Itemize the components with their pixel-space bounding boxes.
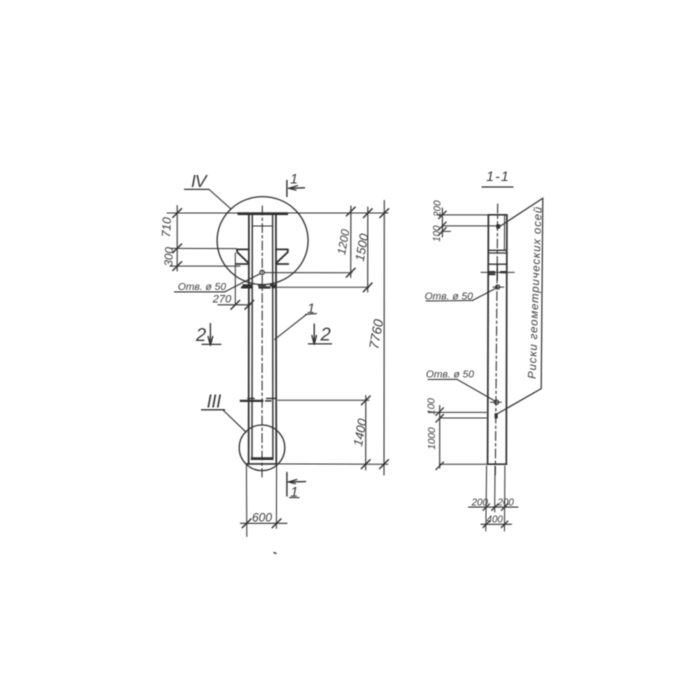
svg-text:2: 2 [195, 324, 207, 345]
svg-text:710: 710 [159, 217, 174, 238]
svg-text:100: 100 [427, 398, 438, 415]
svg-text:1400: 1400 [351, 418, 370, 448]
svg-text:1: 1 [290, 171, 298, 187]
svg-text:1500: 1500 [353, 233, 372, 263]
svg-text:200: 200 [497, 497, 515, 508]
svg-text:100: 100 [432, 225, 443, 242]
svg-text:200: 200 [471, 497, 489, 508]
svg-text:1-1: 1-1 [486, 168, 510, 184]
svg-text:200: 200 [432, 200, 443, 218]
svg-text:IV: IV [191, 171, 209, 191]
svg-text:300: 300 [163, 246, 176, 266]
svg-text:2: 2 [319, 324, 331, 345]
svg-text:270: 270 [212, 293, 232, 305]
svg-text:400: 400 [487, 514, 504, 525]
svg-text:III: III [207, 390, 221, 411]
svg-text:7760: 7760 [366, 318, 386, 351]
svg-text:1200: 1200 [336, 228, 352, 256]
svg-text:Отв. ø 50: Отв. ø 50 [178, 282, 227, 293]
svg-text:600: 600 [252, 510, 272, 524]
svg-text:1000: 1000 [427, 427, 438, 450]
